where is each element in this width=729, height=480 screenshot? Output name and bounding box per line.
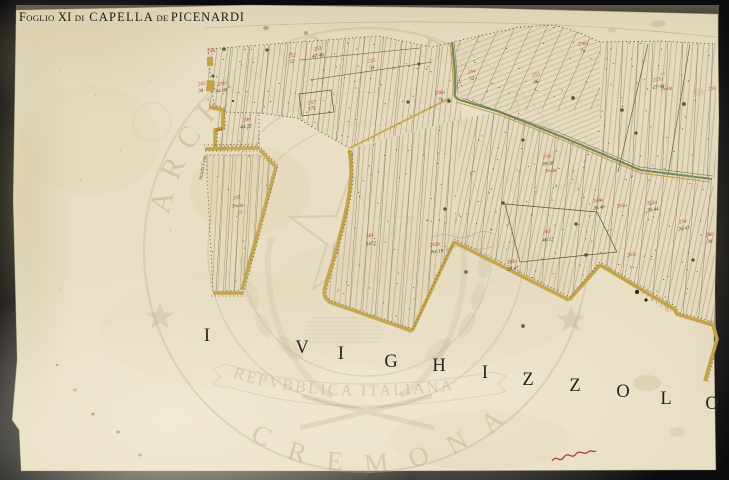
svg-text:254: 254 — [468, 70, 477, 76]
svg-text:243: 243 — [198, 82, 207, 88]
svg-text:H: H — [432, 356, 445, 376]
svg-text:249: 249 — [218, 82, 227, 88]
svg-text:I: I — [482, 363, 488, 383]
svg-text:575: 575 — [308, 107, 317, 113]
svg-text:259: 259 — [543, 155, 552, 161]
svg-text:Z: Z — [569, 376, 580, 396]
svg-text:254: 254 — [679, 220, 688, 226]
svg-text:254: 254 — [207, 49, 216, 55]
svg-text:I: I — [204, 326, 210, 346]
svg-text:Z: Z — [522, 370, 533, 390]
svg-text:I: I — [338, 344, 344, 364]
svg-text:O: O — [705, 394, 718, 414]
svg-text:255: 255 — [368, 59, 377, 65]
svg-text:259: 259 — [708, 87, 717, 93]
svg-text:252: 252 — [288, 54, 297, 60]
svg-text:248: 248 — [243, 118, 252, 124]
svg-text:257: 257 — [308, 101, 317, 107]
svg-text:V: V — [295, 338, 309, 358]
svg-text:O: O — [616, 382, 629, 402]
svg-text:244: 244 — [215, 128, 224, 134]
svg-text:263: 263 — [543, 230, 552, 236]
svg-text:253: 253 — [314, 47, 323, 53]
svg-text:G: G — [384, 352, 397, 372]
svg-text:FOGLIO XI DI CAPELLA DE PICEN: FOGLIO XI DI CAPELLA DE PICENARDI — [19, 10, 245, 24]
svg-text:L: L — [660, 389, 671, 409]
svg-text:261: 261 — [366, 234, 374, 240]
svg-text:253: 253 — [532, 73, 541, 79]
svg-text:256: 256 — [705, 233, 714, 239]
